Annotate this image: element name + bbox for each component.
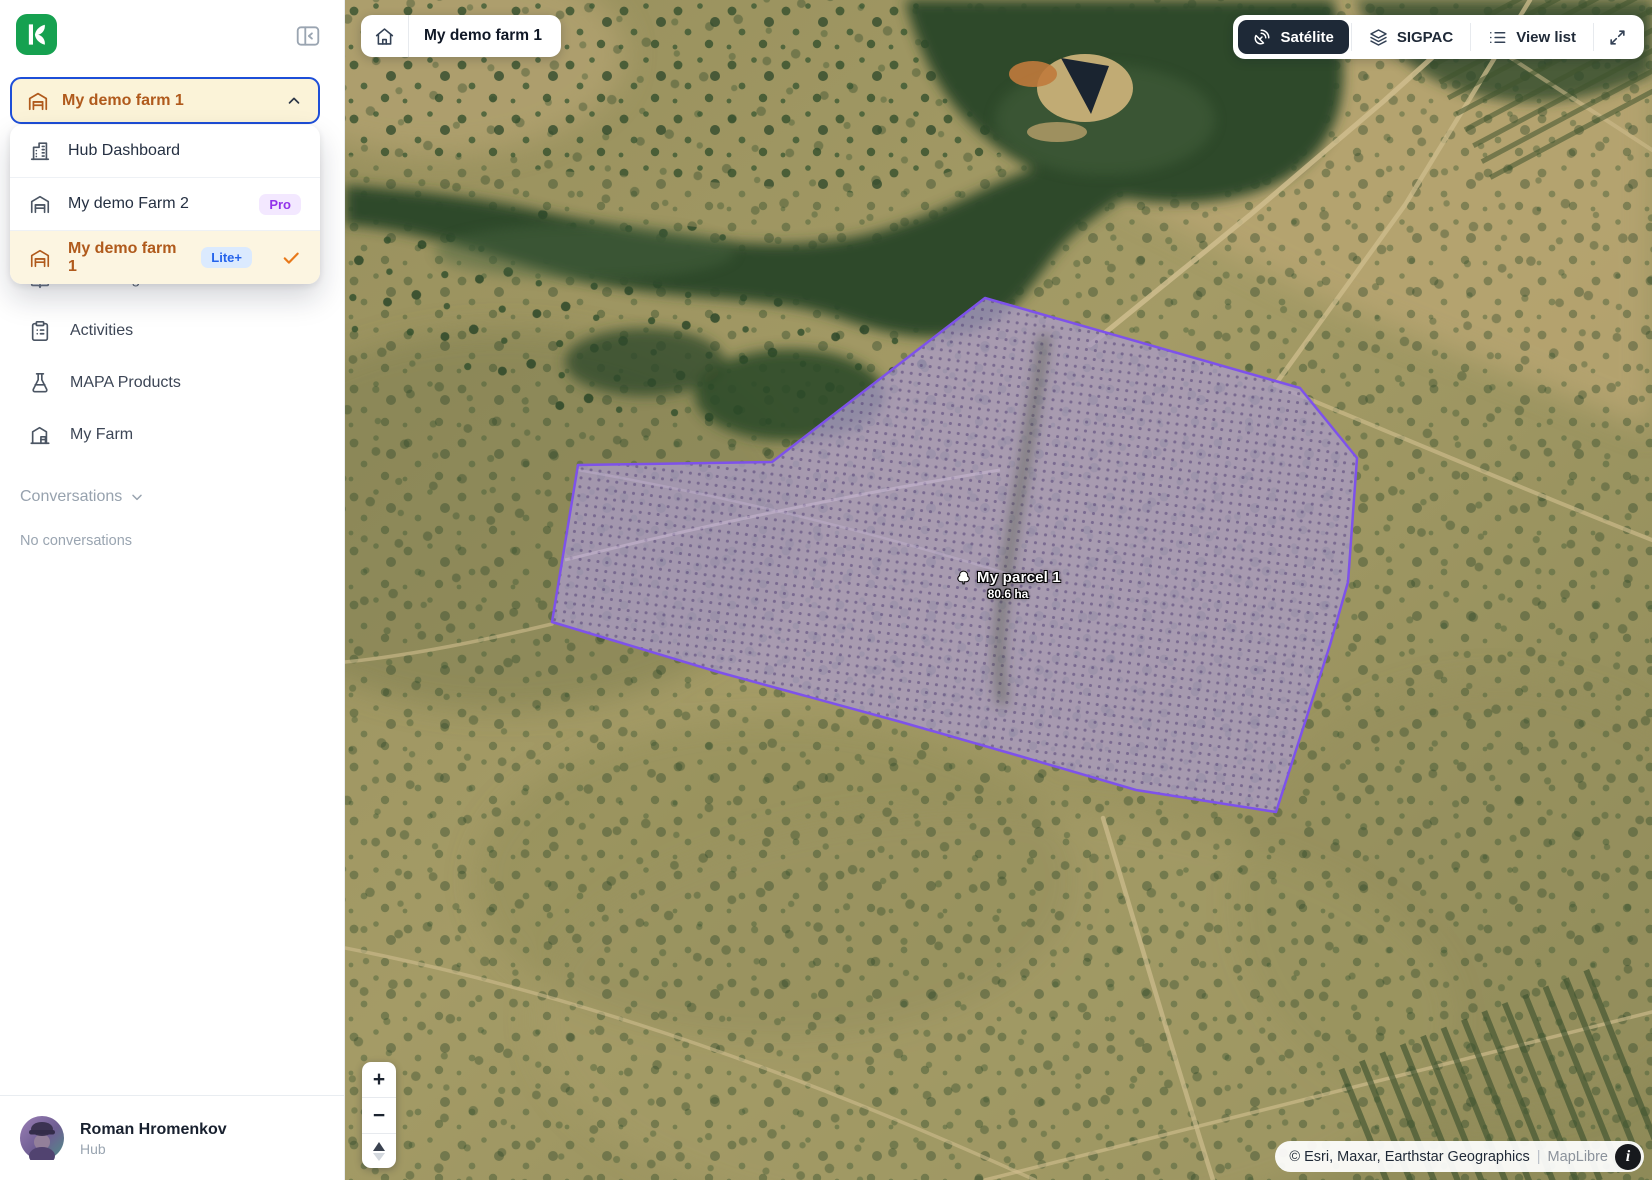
clipboard-list-icon xyxy=(29,320,51,342)
sidebar-item-my-farm[interactable]: My Farm xyxy=(0,409,344,461)
brand-k-leaf-icon xyxy=(23,21,50,48)
divider xyxy=(1593,23,1594,51)
pro-badge: Pro xyxy=(259,194,301,215)
breadcrumb: My demo farm 1 xyxy=(361,15,561,57)
check-icon xyxy=(281,248,301,268)
map-layer-controls: Satélite SIGPAC View list xyxy=(1233,15,1644,59)
home-button[interactable] xyxy=(361,15,408,57)
buildings-icon xyxy=(29,140,51,162)
satellite-label: Satélite xyxy=(1280,29,1333,46)
sigpac-label: SIGPAC xyxy=(1397,29,1453,46)
dropdown-item-farm-1[interactable]: My demo farm 1 Lite+ xyxy=(10,231,320,284)
chevron-down-icon xyxy=(129,489,145,505)
user-name: Roman Hromenkov xyxy=(80,1119,227,1141)
sidebar-nav: Knowledge Activities xyxy=(0,253,344,461)
layers-icon xyxy=(1369,28,1388,47)
user-footer[interactable]: Roman Hromenkov Hub xyxy=(0,1095,344,1180)
flask-icon xyxy=(29,372,51,394)
breadcrumb-farm-name: My demo farm 1 xyxy=(409,27,561,45)
farm-selector-label: My demo farm 1 xyxy=(62,92,272,110)
tree-icon xyxy=(955,569,972,586)
divider xyxy=(1351,23,1352,51)
attribution-sources: © Esri, Maxar, Earthstar Geographics xyxy=(1289,1149,1529,1165)
attribution-info-button[interactable]: i xyxy=(1615,1144,1641,1170)
sidebar-item-label: Activities xyxy=(70,322,133,340)
compass-pitch-button[interactable] xyxy=(362,1134,396,1168)
attribution-renderer: MapLibre xyxy=(1548,1149,1608,1165)
farm-building-icon xyxy=(29,424,51,446)
fullscreen-button[interactable] xyxy=(1596,20,1639,54)
zoom-in-button[interactable]: + xyxy=(362,1062,396,1097)
dropdown-item-label: My demo Farm 2 xyxy=(68,195,189,213)
dropdown-item-label: Hub Dashboard xyxy=(68,142,180,160)
parcel-area: 80.6 ha xyxy=(955,587,1061,601)
attribution-separator: | xyxy=(1537,1149,1541,1165)
dropdown-item-label: My demo farm 1 xyxy=(68,240,184,276)
dropdown-item-farm-2[interactable]: My demo Farm 2 Pro xyxy=(10,178,320,231)
map-canvas[interactable]: My parcel 1 80.6 ha My demo farm 1 xyxy=(345,0,1652,1180)
sidebar-item-label: MAPA Products xyxy=(70,374,181,392)
expand-icon xyxy=(1608,28,1627,47)
list-icon xyxy=(1488,28,1507,47)
view-list-label: View list xyxy=(1516,29,1576,46)
panel-collapse-icon xyxy=(295,23,321,49)
parcel-name: My parcel 1 xyxy=(977,569,1061,586)
conversations-label: Conversations xyxy=(20,488,122,506)
app-root: My demo farm 1 Hub Dashboard xyxy=(0,0,1652,1180)
app-logo[interactable] xyxy=(16,14,57,55)
parcel-label[interactable]: My parcel 1 80.6 ha xyxy=(955,569,1061,601)
map-zoom-control: + − xyxy=(362,1062,396,1168)
sidebar-collapse-button[interactable] xyxy=(294,22,322,50)
satellite-dish-icon xyxy=(1253,28,1271,46)
sidebar-item-activities[interactable]: Activities xyxy=(0,305,344,357)
warehouse-icon xyxy=(29,247,51,269)
user-role: Hub xyxy=(80,1141,227,1157)
chevron-up-icon xyxy=(285,92,303,110)
farm-selector[interactable]: My demo farm 1 xyxy=(10,77,320,124)
dropdown-item-hub-dashboard[interactable]: Hub Dashboard xyxy=(10,125,320,178)
sidebar-item-label: My Farm xyxy=(70,426,133,444)
avatar xyxy=(20,1116,64,1160)
sigpac-layer-button[interactable]: SIGPAC xyxy=(1354,20,1468,54)
warehouse-icon xyxy=(27,90,49,112)
view-list-button[interactable]: View list xyxy=(1473,20,1591,54)
north-arrow-icon xyxy=(373,1142,385,1151)
satellite-layer-button[interactable]: Satélite xyxy=(1238,20,1348,54)
map-attribution: © Esri, Maxar, Earthstar Geographics | M… xyxy=(1275,1141,1644,1172)
conversations-header[interactable]: Conversations xyxy=(20,488,145,506)
zoom-out-button[interactable]: − xyxy=(362,1098,396,1133)
lite-badge: Lite+ xyxy=(201,247,252,268)
sidebar-item-mapa-products[interactable]: MAPA Products xyxy=(0,357,344,409)
south-arrow-icon xyxy=(373,1153,385,1161)
sidebar: My demo farm 1 Hub Dashboard xyxy=(0,0,345,1180)
divider xyxy=(1470,23,1471,51)
warehouse-icon xyxy=(29,193,51,215)
home-icon xyxy=(374,26,395,47)
conversations-empty-text: No conversations xyxy=(20,533,324,549)
conversations-section: Conversations No conversations xyxy=(20,488,324,549)
farm-dropdown-menu: Hub Dashboard My demo Farm 2 Pro My demo… xyxy=(10,125,320,284)
